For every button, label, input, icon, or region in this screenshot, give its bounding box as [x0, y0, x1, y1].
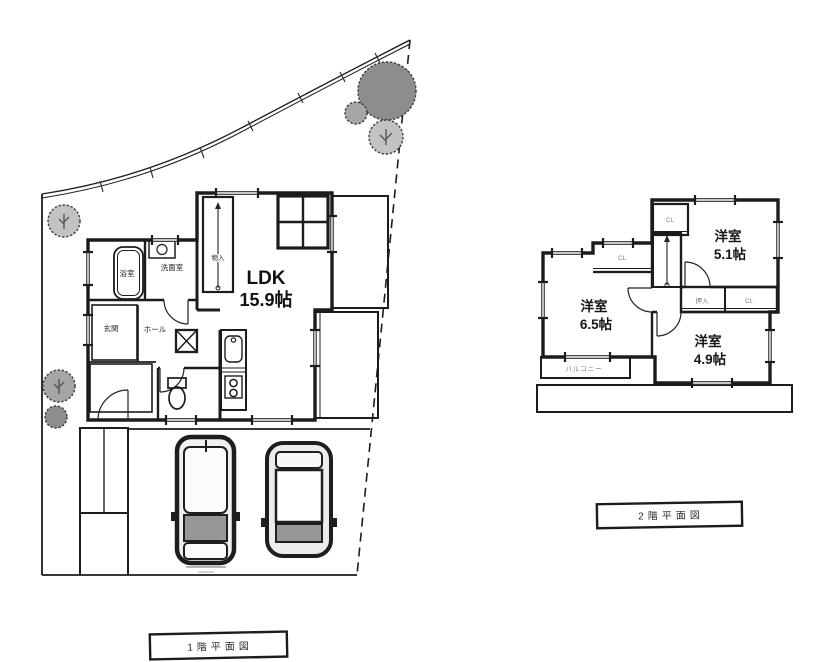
- exterior-stairs: [80, 428, 128, 575]
- stair-storage-label: 物入: [212, 253, 226, 262]
- ldk-area-label: 15.9帖: [239, 289, 292, 310]
- room-6-5-area: 6.5帖: [580, 316, 613, 332]
- grid-window: [278, 196, 328, 248]
- room-6-5-label: 洋室: [581, 298, 609, 314]
- hood: [184, 543, 227, 559]
- deck-lower: [315, 312, 378, 418]
- washroom-label: 洗面室: [161, 262, 184, 272]
- window: [166, 415, 196, 425]
- stairs-2f: [653, 233, 681, 287]
- entrance-porch-tiles: [90, 364, 152, 412]
- window: [538, 282, 548, 318]
- closet-c-label: CL: [745, 299, 753, 305]
- room-4-9-area: 4.9帖: [694, 351, 727, 367]
- window: [695, 195, 735, 205]
- room-5-1-area: 5.1帖: [714, 246, 747, 262]
- caption-1f-text: 1階平面図: [187, 640, 253, 653]
- trunk: [276, 452, 322, 468]
- room-5-1-label: 洋室: [715, 228, 743, 244]
- window: [152, 235, 178, 245]
- trees: [43, 62, 416, 428]
- boundary-tick-marks: [100, 53, 380, 192]
- kitchen-sink: [225, 336, 242, 362]
- house-outline-1f: [88, 193, 332, 420]
- floor-plan-2f: 洋室 5.1帖 洋室 6.5帖 洋室 4.9帖 CL CL 押入 CL バルコニ…: [537, 195, 792, 412]
- windows-1f: [83, 188, 337, 425]
- tree-small: [345, 102, 367, 124]
- deck-upper: [332, 196, 388, 308]
- room-4-9-label: 洋室: [695, 333, 723, 349]
- window: [603, 238, 633, 248]
- tree-left-small: [45, 406, 67, 428]
- windows-2f: [538, 195, 783, 388]
- faucet-icon: [231, 338, 235, 342]
- toilet-fixture: [168, 378, 186, 409]
- floorplan-drawing: LDK 15.9帖 浴室 洗面室 玄関 ホール 物入: [0, 0, 822, 662]
- car-2: [261, 443, 337, 556]
- side-mirror-icon: [261, 518, 267, 527]
- interior-walls-2f: [593, 233, 778, 357]
- windshield: [184, 515, 227, 541]
- balcony-label: バルコニー: [565, 365, 602, 373]
- entrance-label: 玄関: [104, 323, 119, 333]
- bath-label: 浴室: [120, 268, 135, 278]
- ldk-label: LDK: [246, 268, 285, 289]
- stairs-1f: [203, 197, 233, 292]
- utility-x-box: [176, 330, 197, 352]
- car-1: [171, 437, 240, 572]
- side-mirror-icon: [234, 512, 240, 521]
- side-mirror-icon: [331, 518, 337, 527]
- window: [765, 330, 775, 362]
- window: [83, 252, 93, 285]
- side-mirror-icon: [171, 512, 177, 521]
- floor-plan-1f: LDK 15.9帖 浴室 洗面室 玄関 ホール 物入: [83, 188, 388, 425]
- window: [692, 378, 732, 388]
- floorplan-scan: LDK 15.9帖 浴室 洗面室 玄関 ホール 物入: [0, 0, 822, 662]
- kitchen-counter: [221, 330, 246, 410]
- window: [310, 330, 320, 366]
- window: [773, 222, 783, 258]
- caption-2f-text: 2階平面図: [638, 509, 704, 522]
- windshield: [276, 524, 322, 542]
- window: [565, 352, 610, 362]
- roof-hatch-band: [537, 385, 792, 412]
- parking-area: [80, 428, 370, 575]
- closet-b-label: CL: [618, 256, 626, 262]
- window: [552, 248, 582, 258]
- closet-a-label: CL: [666, 218, 674, 224]
- caption-2f: 2階平面図: [597, 502, 742, 529]
- hall-label: ホール: [144, 325, 167, 334]
- roof: [276, 470, 322, 522]
- caption-1f: 1階平面図: [150, 632, 287, 660]
- oshiire-label: 押入: [696, 296, 710, 305]
- window: [252, 415, 292, 425]
